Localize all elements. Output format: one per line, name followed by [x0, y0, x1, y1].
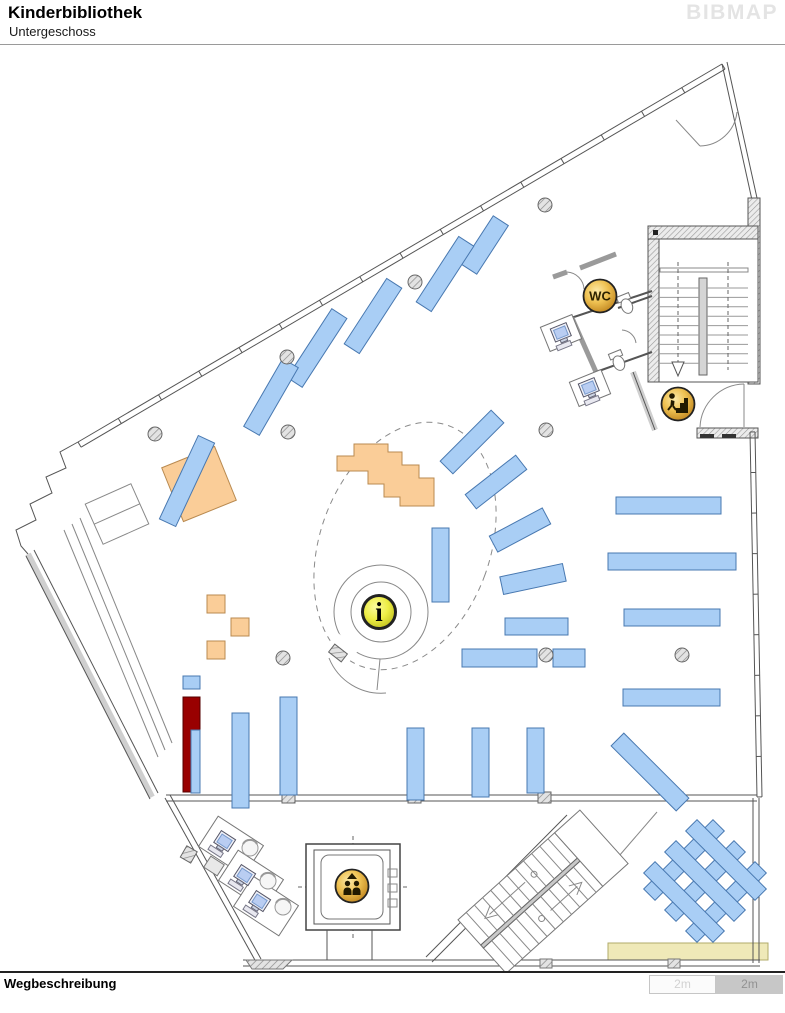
column [539, 423, 553, 437]
shelf [472, 728, 489, 797]
column [408, 275, 422, 289]
floor-mat [608, 943, 768, 960]
staircase-bottom [458, 810, 628, 973]
stairs-down-icon[interactable] [662, 388, 695, 421]
kiosk-outline [85, 484, 149, 545]
page-title: Kinderbibliothek [8, 3, 142, 23]
column [280, 350, 294, 364]
floor-plan: WCi [0, 0, 785, 1011]
column [539, 648, 553, 662]
directions-label: Wegbeschreibung [4, 976, 116, 991]
shelf [232, 713, 249, 808]
wood-blocks-layer [162, 446, 249, 659]
info-icon[interactable]: i [363, 596, 396, 629]
shelf [280, 697, 297, 795]
scale-segment-2: 2m [716, 975, 783, 994]
column [276, 651, 290, 665]
chair [242, 840, 258, 856]
floor-subtitle: Untergeschoss [9, 24, 96, 39]
shelf [623, 689, 720, 706]
shelf [489, 508, 550, 552]
shelf [462, 649, 537, 667]
shelf [624, 609, 720, 626]
page-header: Kinderbibliothek Untergeschoss BIBMAP [0, 0, 785, 45]
shelf [611, 733, 689, 811]
wood-block [207, 595, 225, 613]
shelf [344, 278, 402, 353]
wc-room [553, 254, 652, 373]
toilet [616, 293, 635, 316]
shelf [183, 676, 200, 689]
stairwell-top-right [648, 226, 758, 382]
shelf [505, 618, 568, 635]
shelf [416, 236, 474, 311]
svg-text:WC: WC [589, 289, 611, 304]
scale-segment-1: 2m [649, 975, 716, 994]
column [281, 425, 295, 439]
bibmap-logo: BIBMAP [686, 1, 778, 25]
shelf [553, 649, 585, 667]
column [538, 198, 552, 212]
page-footer: Wegbeschreibung 2m 2m [0, 971, 785, 1013]
chair [275, 899, 291, 915]
column [675, 648, 689, 662]
shelf [191, 730, 200, 793]
scale-bar: 2m 2m [649, 975, 783, 994]
shelf [608, 553, 736, 570]
shelf [244, 359, 299, 436]
wood-block [207, 641, 225, 659]
shelf [616, 497, 721, 514]
wc-icon[interactable]: WC [584, 280, 617, 313]
shelf [432, 528, 449, 602]
podest-steps [337, 444, 434, 506]
walls-layer [16, 62, 768, 973]
shelf [407, 728, 424, 800]
shelf [500, 564, 566, 595]
wood-block [231, 618, 249, 636]
shelf [440, 410, 504, 474]
elevator-icon[interactable] [336, 870, 369, 903]
chair [260, 873, 276, 889]
svg-text:i: i [375, 597, 383, 627]
column [148, 427, 162, 441]
shelf [527, 728, 544, 793]
